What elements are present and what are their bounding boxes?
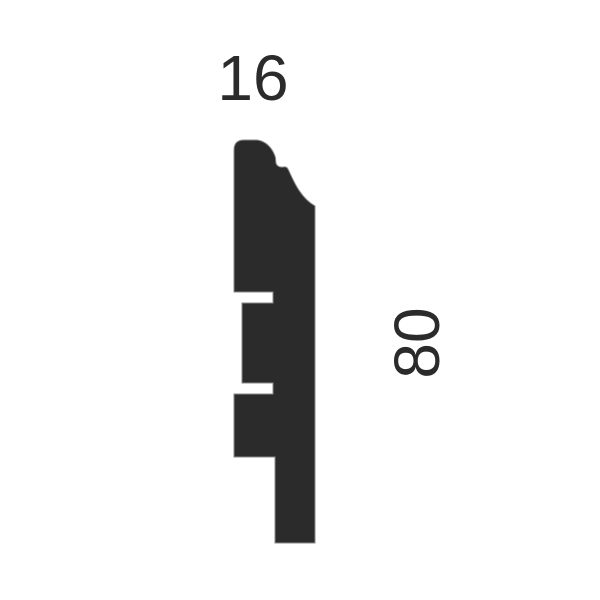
profile-drawing [0, 0, 600, 600]
drawing-canvas: 16 80 [0, 0, 600, 600]
width-dimension-label: 16 [217, 46, 288, 110]
skirting-profile-shape [234, 140, 315, 543]
height-dimension-label: 80 [385, 307, 449, 378]
